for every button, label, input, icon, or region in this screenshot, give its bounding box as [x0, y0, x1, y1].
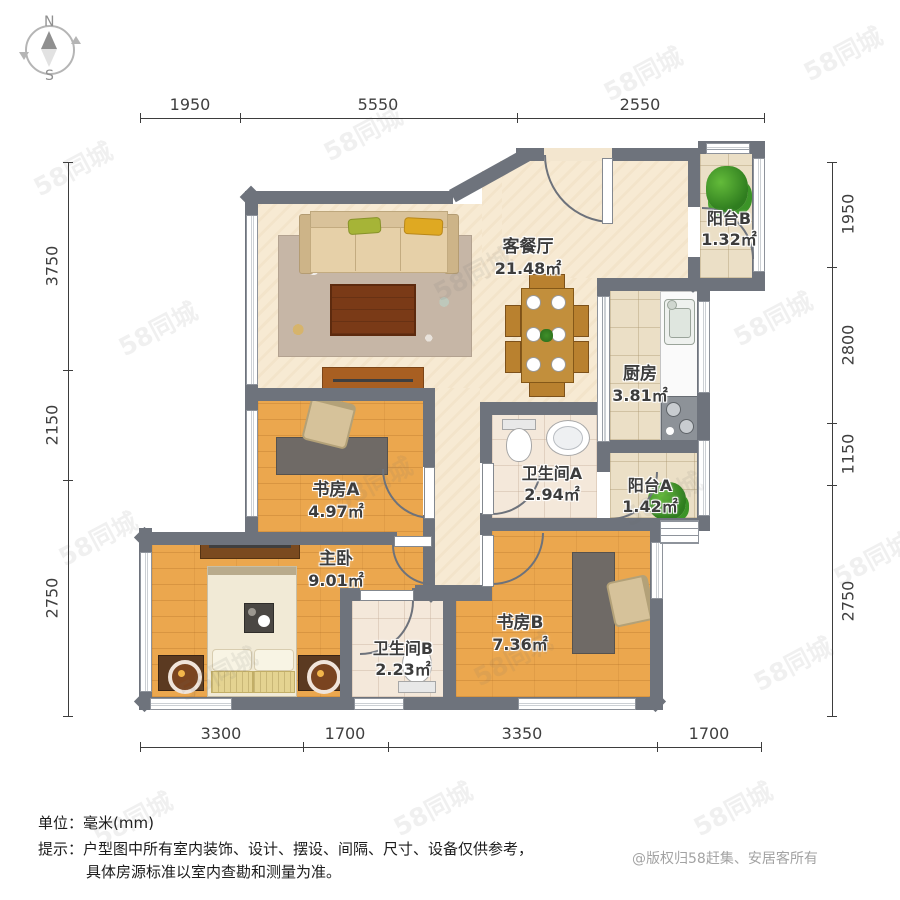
room-area: 2.23㎡: [373, 659, 433, 680]
kitchen-sink: [664, 299, 695, 345]
window-living-left: [246, 215, 258, 385]
window-master-left: [140, 552, 152, 692]
plate: [526, 357, 541, 372]
compass: N S: [18, 12, 82, 84]
wall: [597, 278, 698, 291]
lamp: [307, 660, 341, 694]
room-name: 卫生间B: [373, 639, 433, 658]
wall: [340, 588, 352, 710]
floorplan-page: { "compass": { "north": "N", "south": "S…: [0, 0, 900, 900]
coffee-table: [330, 284, 416, 336]
stove-burner: [666, 402, 681, 417]
dim-left-3: 2750: [43, 578, 62, 619]
room-label-study-b: 书房B 7.36㎡: [492, 612, 547, 656]
door-leaf-master: [394, 536, 432, 547]
stove-knob: [666, 427, 674, 435]
tip-line1: 提示：户型图中所有室内装饰、设计、摆设、间隔、尺寸、设备仅供参考，: [38, 838, 533, 859]
dim-right-2: 2800: [839, 325, 858, 366]
window-study-b-right: [651, 542, 663, 599]
window-balcony-b-top: [706, 143, 750, 154]
floor-corridor: [435, 388, 480, 601]
floor-study-b2: [456, 601, 492, 697]
wall: [516, 148, 544, 161]
door-leaf-study-b: [482, 535, 494, 587]
room-name: 书房B: [497, 613, 544, 633]
basin-inner: [553, 426, 583, 450]
dining-chair: [505, 341, 521, 373]
basin-a: [546, 420, 590, 456]
dining-set: [503, 274, 589, 395]
dim-right-1: 1950: [839, 194, 858, 235]
room-label-master: 主卧 9.01㎡: [308, 548, 363, 592]
window-balcony-a-right: [698, 440, 710, 516]
dim-left-1: 3750: [43, 246, 62, 287]
dim-right-3: 1150: [839, 434, 858, 475]
toilet-a: [500, 419, 536, 463]
toilet-tank: [398, 681, 436, 693]
room-name: 阳台A: [628, 476, 672, 495]
plate: [551, 295, 566, 310]
wall: [480, 402, 492, 463]
window-study-a-left: [246, 410, 258, 517]
table-plant: [540, 329, 553, 342]
room-area: 4.97㎡: [308, 501, 363, 522]
dim-bottom-4: 1700: [689, 724, 730, 743]
window-bath-b-bottom: [354, 698, 404, 710]
wall: [245, 388, 435, 401]
window-master-bottom: [150, 698, 232, 710]
watermark-58tongcheng: 58同城: [387, 772, 479, 844]
wall: [480, 402, 610, 415]
pillow: [212, 649, 252, 671]
dim-bottom-3: 3350: [502, 724, 543, 743]
plant-balcony-b: [706, 166, 748, 212]
room-name: 厨房: [623, 364, 657, 384]
nightstand-right: [298, 655, 342, 691]
dining-table: [521, 288, 574, 383]
door-leaf-bath-b: [360, 590, 414, 601]
wall: [612, 148, 700, 161]
dim-top-1: 1950: [170, 95, 211, 114]
room-label-balcony-a: 阳台A 1.42㎡: [622, 475, 677, 517]
sink-basin: [669, 308, 691, 338]
dim-top-3: 2550: [620, 95, 661, 114]
watermark-58tongcheng: 58同城: [52, 502, 144, 574]
unit-note: 单位：毫米(mm): [38, 812, 154, 833]
blanket: [253, 671, 295, 693]
plate: [551, 357, 566, 372]
plate: [526, 327, 541, 342]
bed-foot-board: [208, 567, 296, 575]
desk-study-b: [572, 552, 615, 654]
tip-line2: 具体房源标准以室内查勘和测量为准。: [86, 861, 341, 882]
lamp-bulb: [317, 670, 324, 677]
watermark-58tongcheng: 58同城: [27, 132, 119, 204]
room-area: 9.01㎡: [308, 570, 363, 591]
sink-faucet: [667, 300, 677, 310]
bed: [207, 566, 297, 697]
room-area: 1.42㎡: [622, 496, 677, 517]
tv-screen: [333, 379, 413, 382]
watermark-58tongcheng: 58同城: [112, 292, 204, 364]
compass-needle-north: [41, 31, 57, 49]
room-label-balcony-b: 阳台B 1.32㎡: [701, 208, 756, 250]
plate: [551, 327, 566, 342]
door-leaf-entry: [602, 158, 613, 224]
wall: [443, 588, 456, 710]
toilet-bowl: [506, 428, 532, 462]
room-name: 书房A: [312, 480, 359, 500]
bed-tray: [244, 603, 274, 633]
room-area: 21.48㎡: [495, 258, 562, 279]
compass-arrow-west: [19, 52, 29, 60]
room-area: 2.94㎡: [522, 484, 582, 505]
tv-screen: [209, 545, 291, 548]
room-label-study-a: 书房A 4.97㎡: [308, 479, 363, 523]
wall: [139, 532, 397, 545]
room-label-bath-b: 卫生间B 2.23㎡: [373, 638, 433, 680]
pillow-green: [347, 217, 381, 235]
sofa-cushion-divider: [400, 227, 401, 271]
tray-dish: [258, 615, 270, 627]
room-label-kitchen: 厨房 3.81㎡: [612, 363, 667, 407]
room-area: 7.36㎡: [492, 634, 547, 655]
lamp: [168, 660, 202, 694]
watermark-58tongcheng: 58同城: [797, 17, 889, 89]
room-name: 卫生间A: [522, 464, 582, 483]
stove-burner: [679, 419, 694, 434]
wall: [597, 278, 610, 298]
plate: [526, 295, 541, 310]
nightstand-left: [158, 655, 204, 691]
watermark-58tongcheng: 58同城: [687, 772, 779, 844]
room-area: 3.81㎡: [612, 385, 667, 406]
sofa: [299, 211, 457, 272]
room-label-living: 客餐厅 21.48㎡: [495, 236, 562, 280]
wall: [423, 388, 435, 467]
watermark-58tongcheng: 58同城: [727, 282, 819, 354]
compass-needle-south: [41, 49, 57, 67]
room-name: 客餐厅: [503, 237, 554, 257]
dim-bottom-2: 1700: [325, 724, 366, 743]
room-name: 主卧: [319, 549, 353, 569]
dim-top-2: 5550: [358, 95, 399, 114]
door-leaf-bath-a: [482, 463, 494, 515]
dim-right-4: 2750: [839, 581, 858, 622]
wall: [688, 154, 700, 207]
tray-clock: [248, 608, 256, 616]
copyright-note: @版权归58赶集、安居客所有: [632, 848, 818, 868]
pillow-yellow: [404, 217, 444, 236]
compass-arrow-east: [71, 36, 81, 44]
balcony-a-steps: [660, 520, 699, 544]
room-label-bath-a: 卫生间A 2.94㎡: [522, 463, 582, 505]
dim-bottom-1: 3300: [201, 724, 242, 743]
pillow: [254, 649, 294, 671]
compass-north-label: N: [44, 14, 54, 30]
dim-left-2: 2150: [43, 405, 62, 446]
watermark-58tongcheng: 58同城: [747, 627, 839, 699]
dining-chair: [573, 341, 589, 373]
compass-south-label: S: [45, 68, 54, 84]
wall: [245, 191, 453, 204]
room-name: 阳台B: [707, 209, 751, 228]
dining-chair: [573, 305, 589, 337]
window-kitchen-right: [698, 301, 710, 393]
window-study-b-bottom: [518, 698, 636, 710]
blanket: [211, 671, 253, 693]
door-leaf-study-a: [424, 467, 435, 519]
sliding-door-kitchen: [597, 296, 610, 442]
dining-chair: [505, 305, 521, 337]
room-area: 1.32㎡: [701, 229, 756, 250]
lamp-bulb: [178, 670, 185, 677]
wall: [597, 440, 710, 453]
